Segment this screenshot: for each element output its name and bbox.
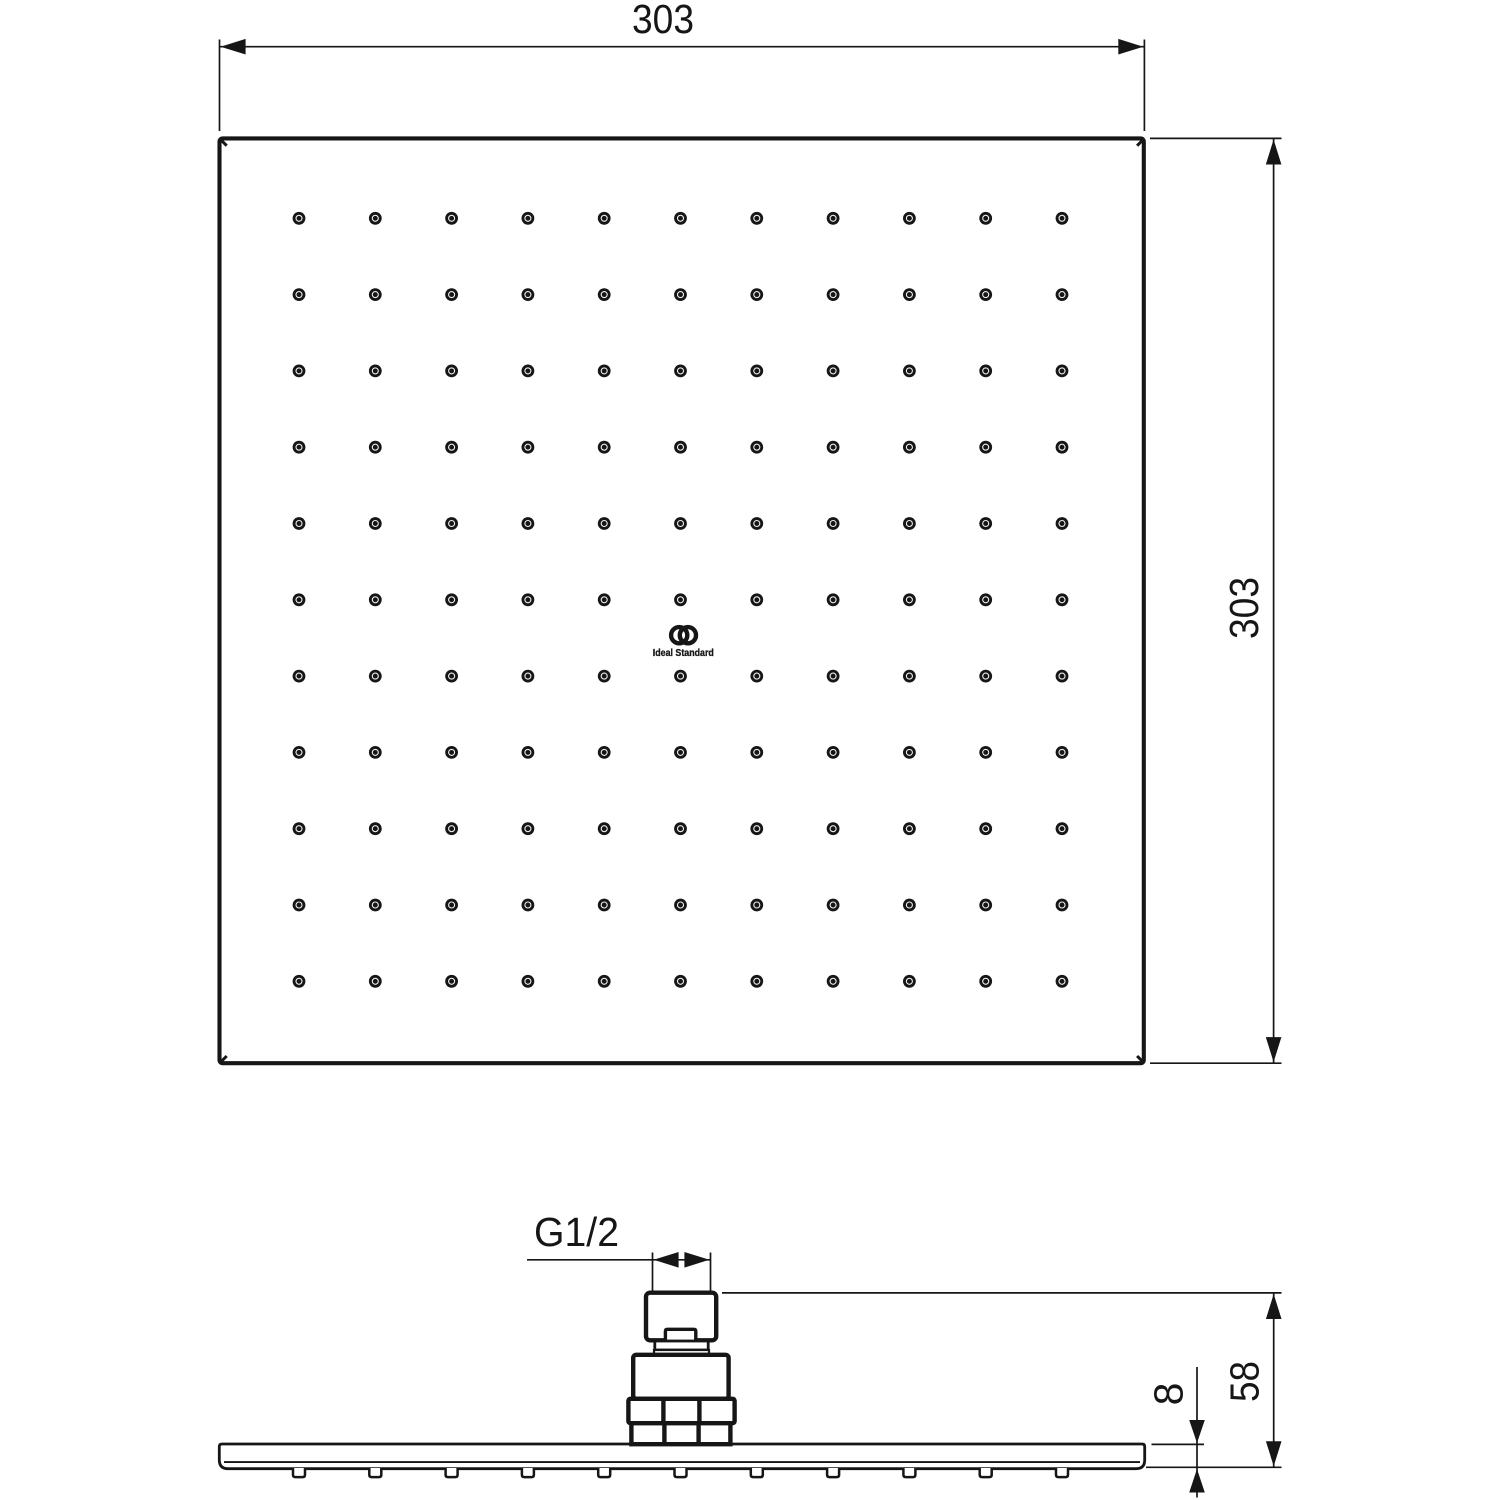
svg-text:58: 58 [1222,1361,1268,1402]
svg-text:8: 8 [1146,1383,1192,1406]
svg-text:303: 303 [1221,577,1267,639]
svg-text:Ideal Standard: Ideal Standard [653,648,714,659]
svg-text:G1/2: G1/2 [534,1209,619,1255]
svg-text:303: 303 [632,0,694,42]
